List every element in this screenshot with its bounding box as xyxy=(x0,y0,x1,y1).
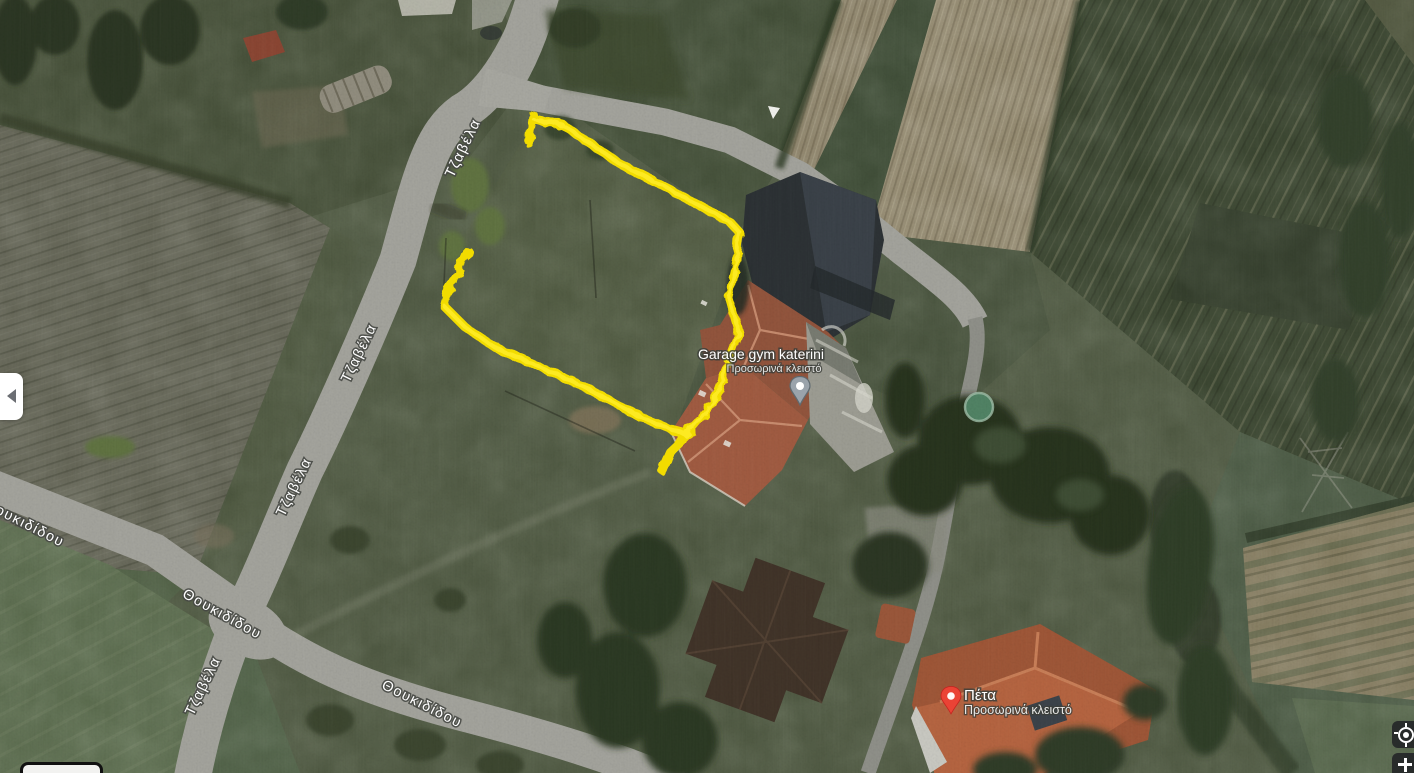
svg-text:Προσωρινά κλειστό: Προσωρινά κλειστό xyxy=(964,703,1072,717)
svg-text:Garage gym katerini: Garage gym katerini xyxy=(698,346,824,362)
svg-text:Πέτα: Πέτα xyxy=(964,687,996,704)
svg-text:Προσωρινά κλειστό: Προσωρινά κλειστό xyxy=(727,363,822,375)
